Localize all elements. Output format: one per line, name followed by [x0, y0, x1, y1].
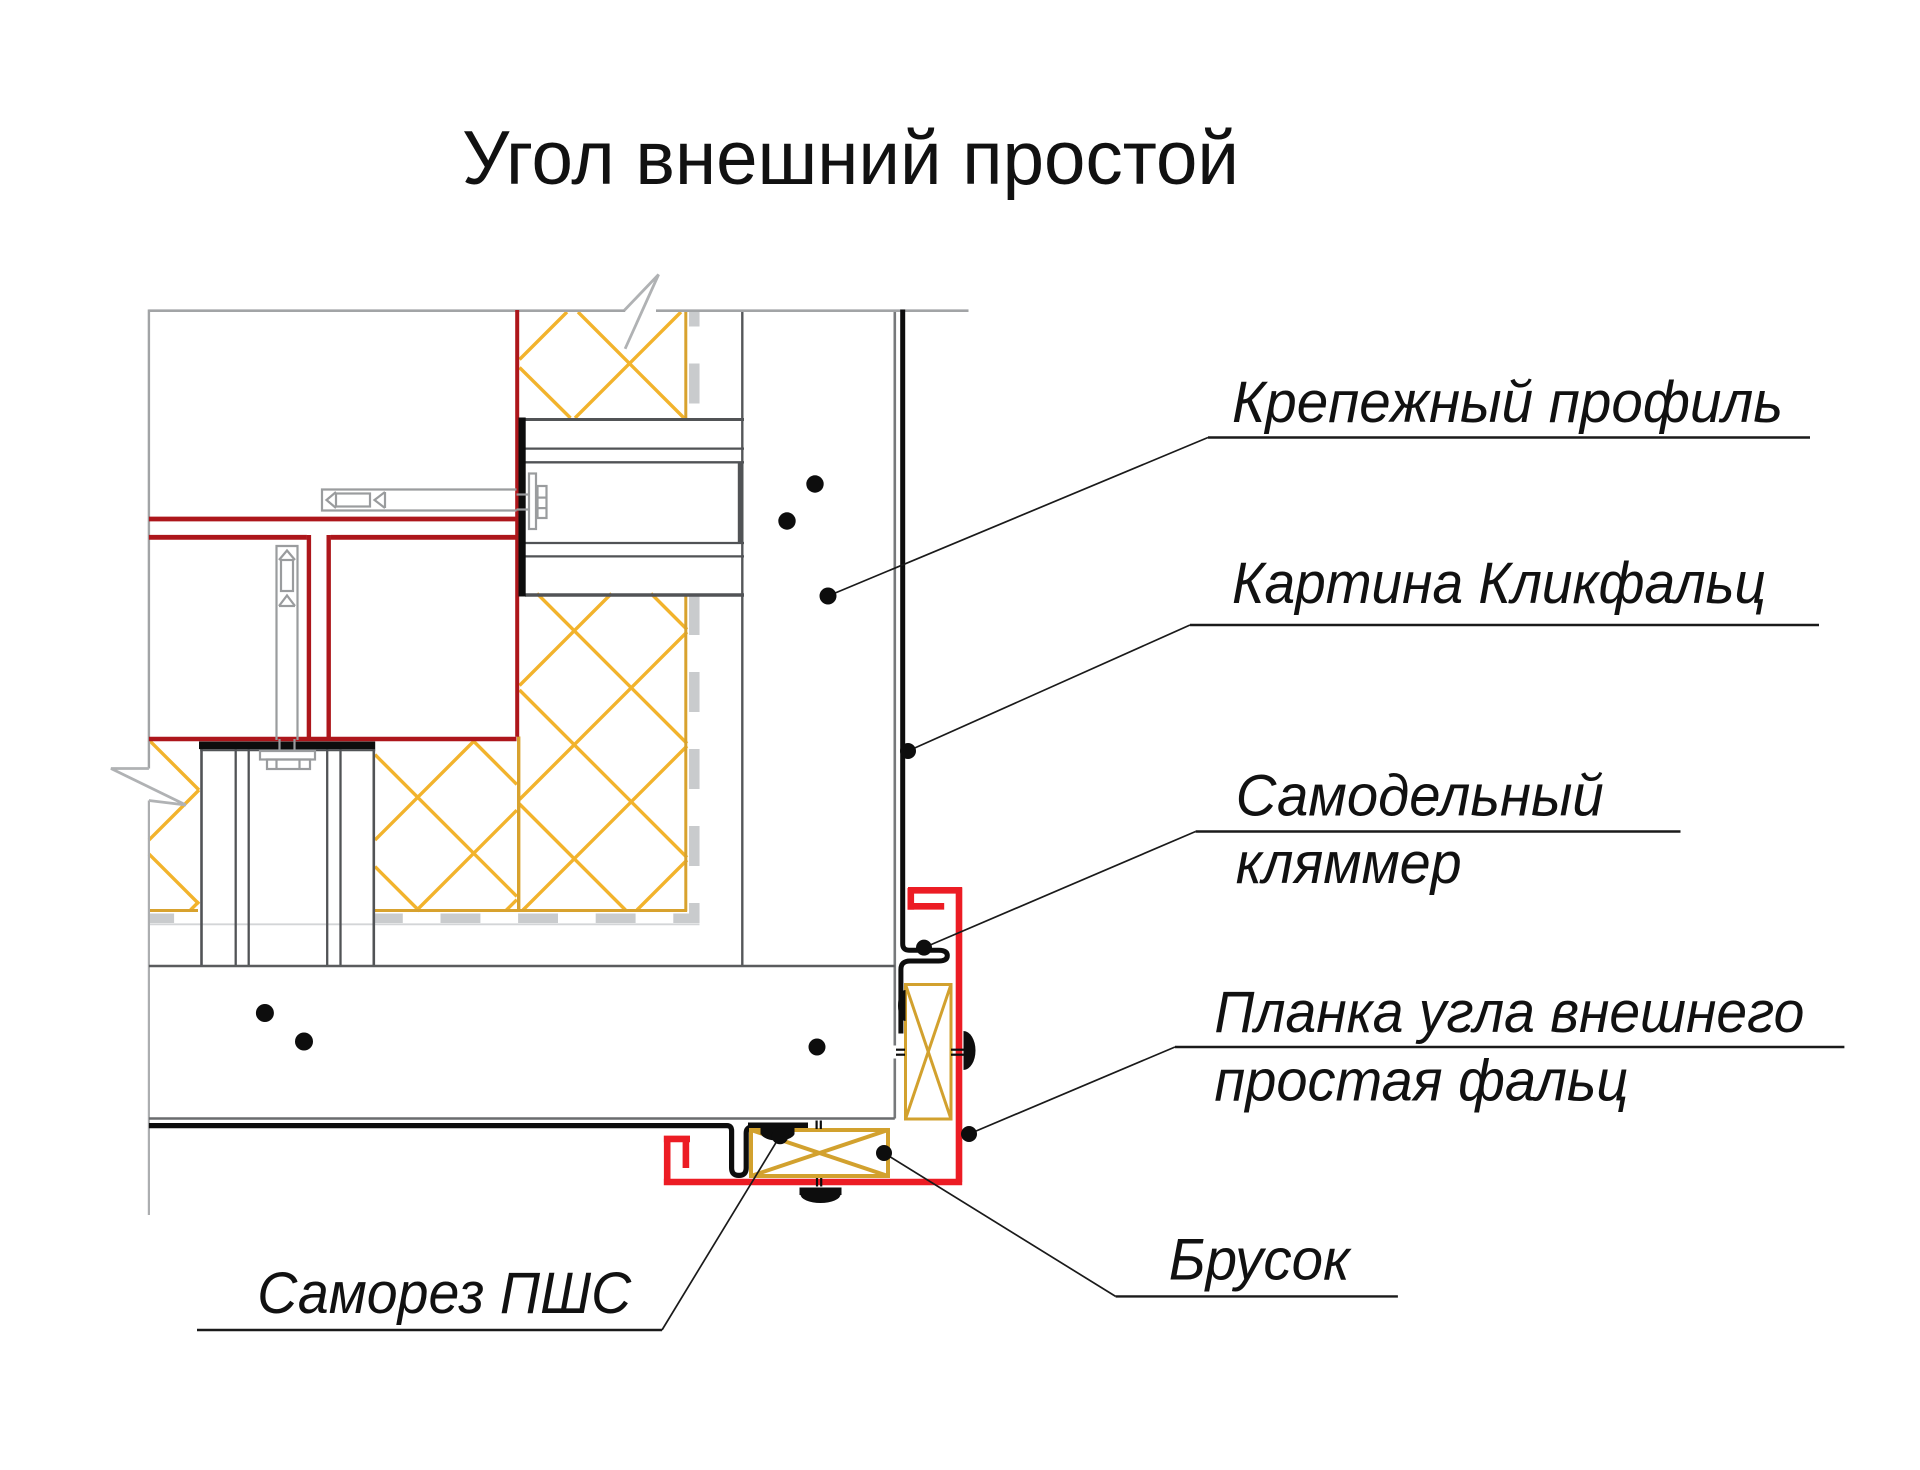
- svg-text:Угол внешний простой: Угол внешний простой: [462, 116, 1239, 201]
- svg-text:Планка угла внешнего: Планка угла внешнего: [1214, 980, 1804, 1045]
- svg-text:Брусок: Брусок: [1169, 1228, 1353, 1293]
- svg-text:Саморез ПШС: Саморез ПШС: [257, 1261, 632, 1326]
- svg-text:простая фальц: простая фальц: [1214, 1049, 1628, 1114]
- svg-text:Картина Кликфальц: Картина Кликфальц: [1232, 551, 1766, 616]
- svg-text:Крепежный профиль: Крепежный профиль: [1232, 370, 1783, 435]
- svg-text:кляммер: кляммер: [1236, 831, 1462, 896]
- svg-text:Самодельный: Самодельный: [1236, 764, 1604, 829]
